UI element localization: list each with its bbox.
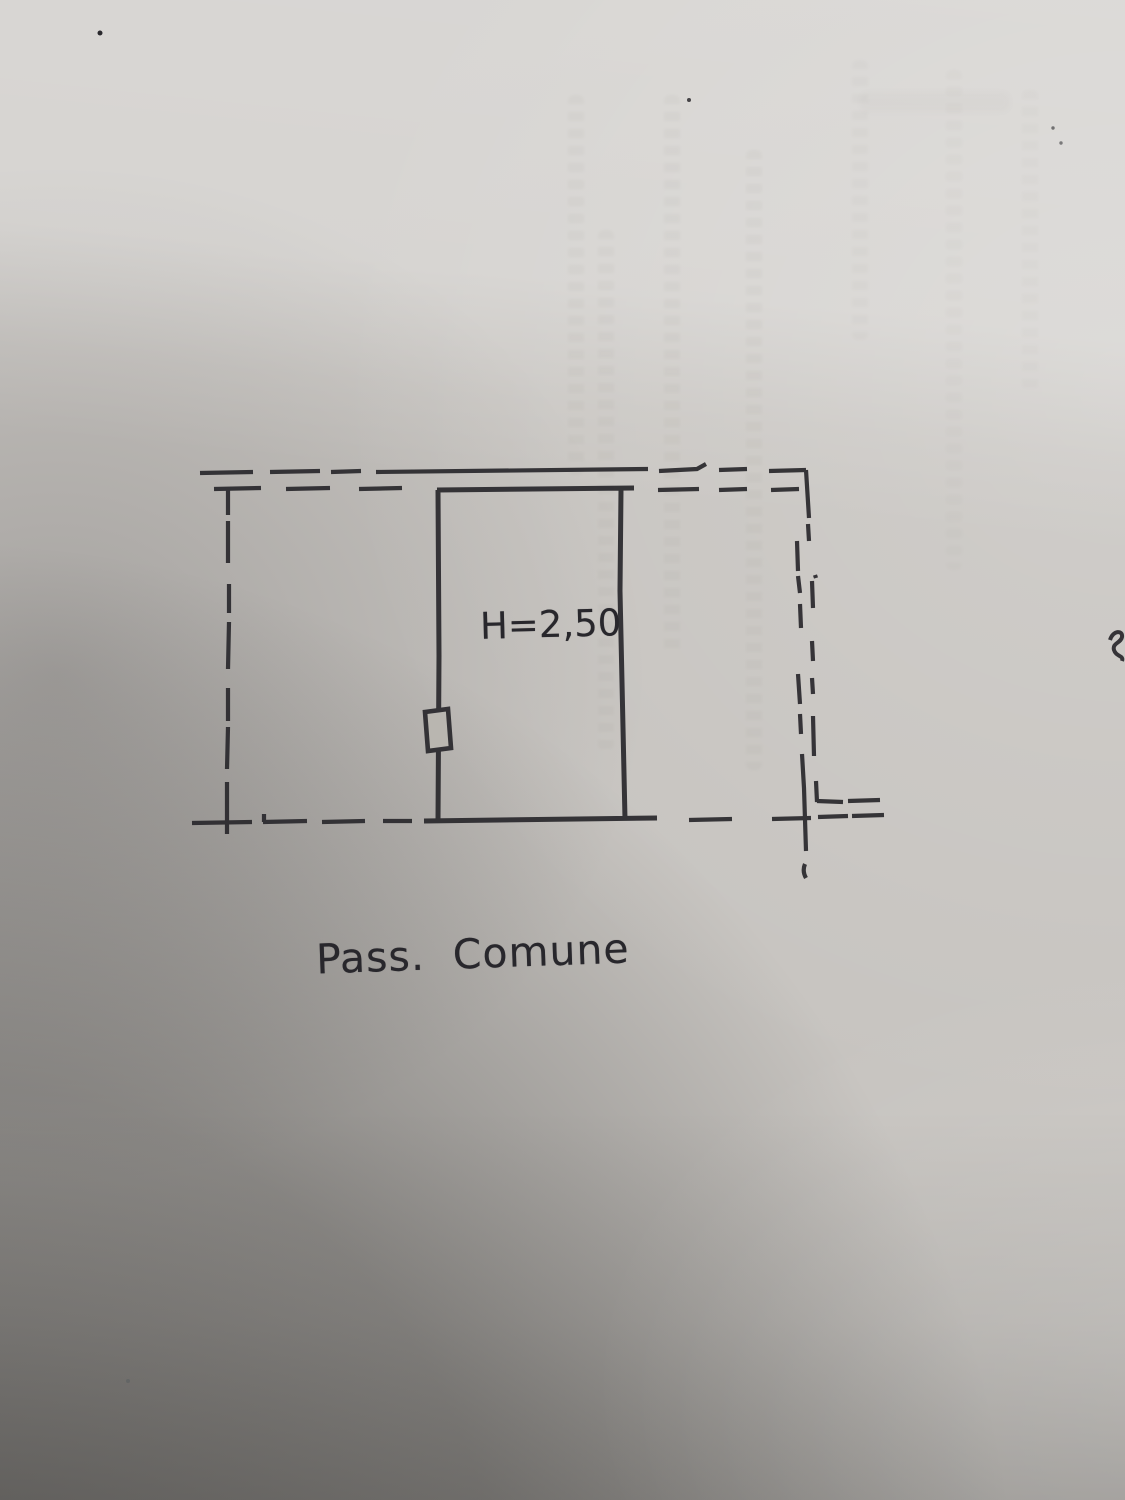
door-symbol: [425, 709, 451, 751]
speck: [126, 1379, 130, 1383]
room-height-label: H=2,50: [480, 604, 622, 645]
ink-specks: [98, 31, 1063, 1384]
outer-wall-top-outer-line: [200, 464, 806, 473]
photographed-document-page: H=2,50 Pass. Comune: [0, 0, 1125, 1500]
room-outline: [424, 488, 657, 821]
speck: [687, 98, 691, 102]
speck: [1051, 126, 1054, 129]
speck: [1059, 141, 1062, 144]
paper-edge-mark: [1110, 632, 1122, 661]
passage-hook: [816, 781, 880, 802]
outer-wall-left: [227, 487, 229, 834]
speck: [98, 31, 103, 36]
floor-plan-drawing: [0, 0, 1125, 1500]
passage-caption: Pass. Comune: [315, 929, 630, 981]
